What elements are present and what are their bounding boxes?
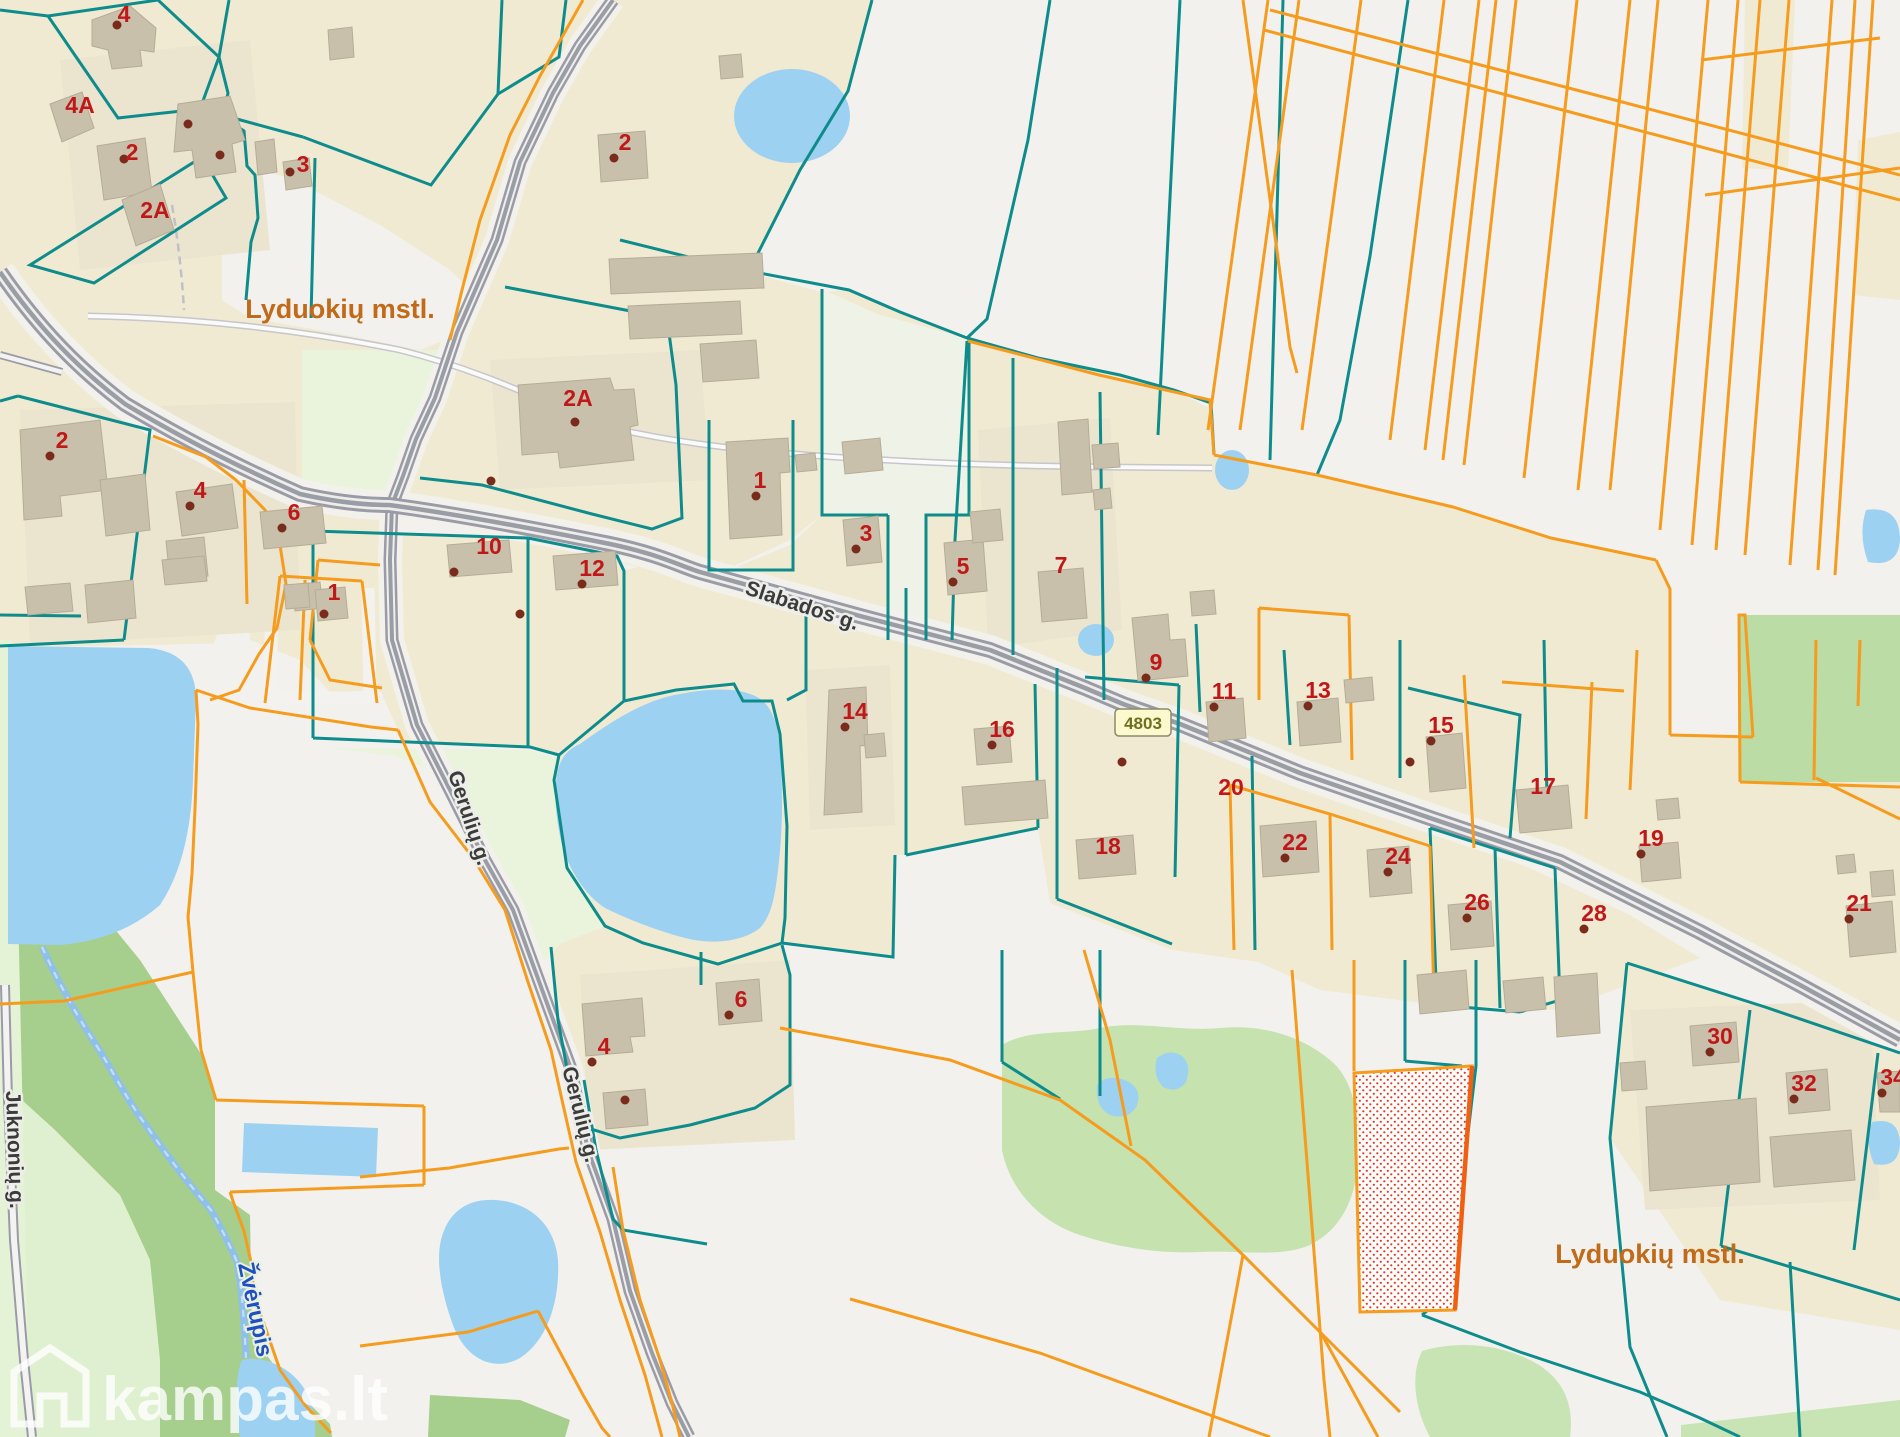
svg-text:13: 13 (1305, 677, 1331, 703)
svg-text:Lyduokių mstl.: Lyduokių mstl. (1555, 1239, 1745, 1269)
svg-text:20: 20 (1218, 774, 1244, 800)
svg-text:5: 5 (957, 553, 970, 579)
svg-text:21: 21 (1846, 890, 1872, 916)
svg-text:2: 2 (619, 129, 632, 155)
svg-text:2A: 2A (563, 385, 592, 411)
svg-text:4A: 4A (65, 92, 94, 118)
svg-text:30: 30 (1707, 1023, 1733, 1049)
svg-text:4: 4 (118, 1, 131, 27)
svg-text:28: 28 (1581, 900, 1607, 926)
svg-text:32: 32 (1791, 1070, 1817, 1096)
svg-text:9: 9 (1150, 649, 1163, 675)
svg-text:3: 3 (860, 520, 873, 546)
svg-text:2: 2 (56, 427, 69, 453)
svg-text:10: 10 (476, 533, 502, 559)
svg-text:6: 6 (288, 499, 301, 525)
svg-text:22: 22 (1282, 829, 1308, 855)
svg-text:26: 26 (1464, 889, 1490, 915)
svg-text:11: 11 (1212, 678, 1237, 704)
svg-text:17: 17 (1530, 773, 1556, 799)
svg-text:14: 14 (842, 698, 868, 724)
svg-text:18: 18 (1095, 833, 1121, 859)
svg-text:2: 2 (126, 139, 139, 165)
svg-text:4: 4 (598, 1033, 611, 1059)
svg-text:12: 12 (579, 555, 605, 581)
svg-text:Lyduokių mstl.: Lyduokių mstl. (245, 294, 435, 324)
svg-text:1: 1 (328, 579, 341, 605)
svg-text:34: 34 (1880, 1064, 1900, 1090)
svg-text:7: 7 (1055, 552, 1068, 578)
svg-text:24: 24 (1385, 843, 1411, 869)
svg-text:15: 15 (1428, 712, 1454, 738)
svg-text:4803: 4803 (1124, 714, 1162, 733)
svg-text:3: 3 (297, 151, 310, 177)
svg-text:6: 6 (735, 986, 748, 1012)
svg-text:19: 19 (1638, 825, 1664, 851)
svg-text:Juknonių g.: Juknonių g. (1, 1090, 28, 1209)
svg-text:16: 16 (989, 716, 1015, 742)
svg-text:kampas.lt: kampas.lt (102, 1365, 388, 1434)
svg-text:2A: 2A (140, 197, 169, 223)
svg-text:1: 1 (754, 467, 767, 493)
svg-text:4: 4 (194, 477, 207, 503)
